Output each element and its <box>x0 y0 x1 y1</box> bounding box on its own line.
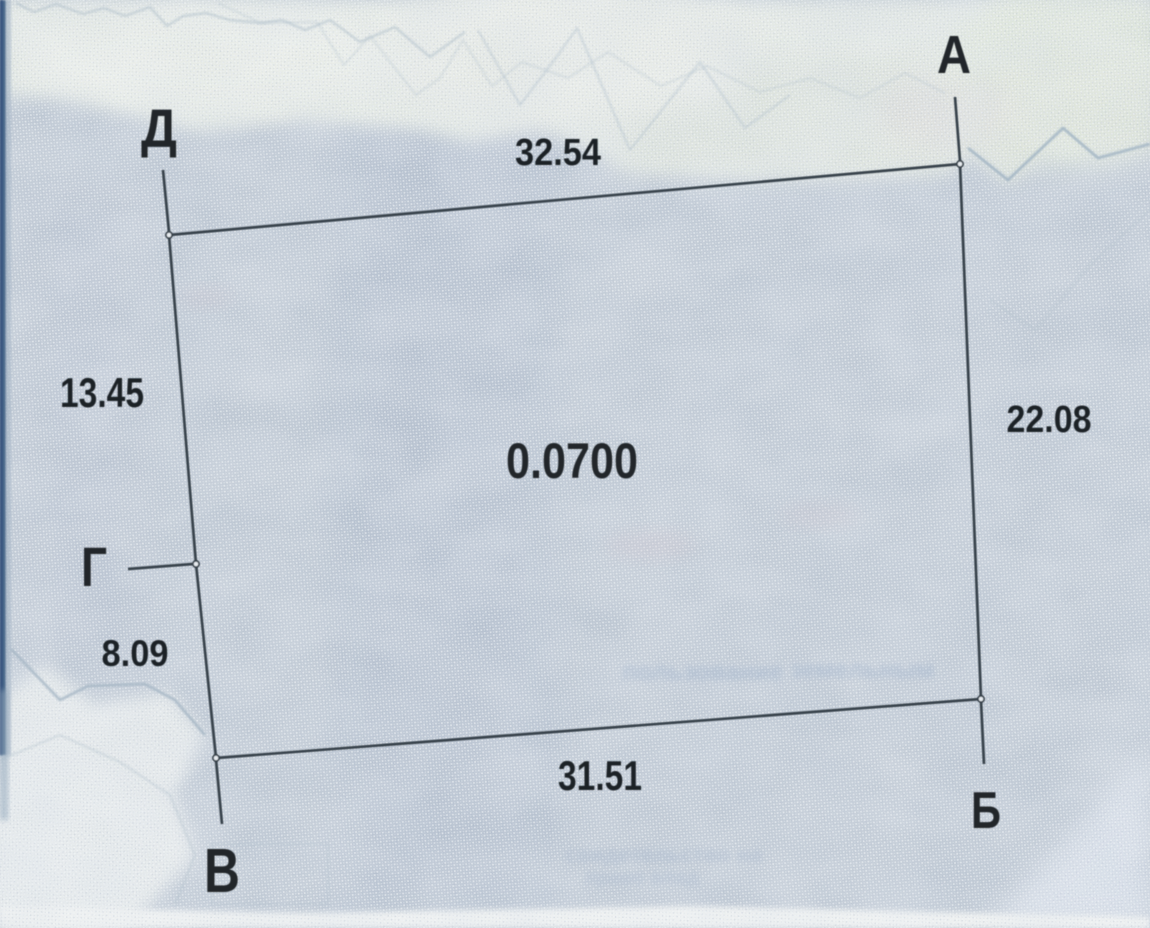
svg-text:Г: Г <box>81 535 107 598</box>
svg-text:А: А <box>937 25 971 85</box>
svg-text:земельным: земельным <box>790 656 934 684</box>
svg-text:22.08: 22.08 <box>1007 399 1092 441</box>
svg-text:право влад: право влад <box>585 867 699 889</box>
svg-text:31.51: 31.51 <box>558 752 642 799</box>
svg-text:В: В <box>204 837 240 906</box>
svg-text:0.0700: 0.0700 <box>506 433 638 489</box>
svg-text:свидетельство на: свидетельство на <box>565 842 763 867</box>
svg-text:пользование: пользование <box>622 658 783 686</box>
svg-text:13.45: 13.45 <box>60 369 144 416</box>
svg-text:8.09: 8.09 <box>102 633 169 674</box>
svg-text:32.54: 32.54 <box>515 132 601 174</box>
svg-text:Д: Д <box>141 99 177 159</box>
svg-text:Б: Б <box>971 782 1001 840</box>
